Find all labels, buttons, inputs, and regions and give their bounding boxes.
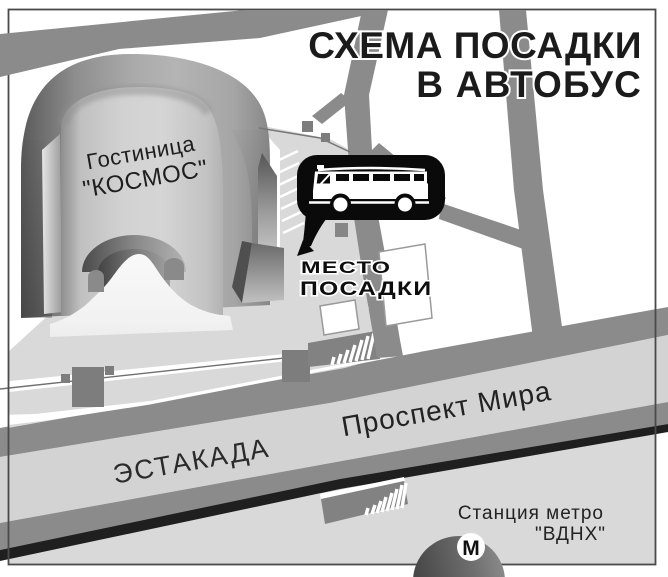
- svg-text:СХЕМА ПОСАДКИ: СХЕМА ПОСАДКИ: [308, 25, 642, 66]
- svg-text:Станция метро: Станция метро: [458, 503, 604, 524]
- svg-text:МЕСТО: МЕСТО: [301, 258, 391, 277]
- svg-text:"ВДНХ": "ВДНХ": [535, 524, 606, 545]
- svg-text:ПОСАДКИ: ПОСАДКИ: [300, 278, 432, 300]
- svg-text:М: М: [462, 537, 480, 560]
- svg-text:В АВТОБУС: В АВТОБУС: [416, 64, 642, 105]
